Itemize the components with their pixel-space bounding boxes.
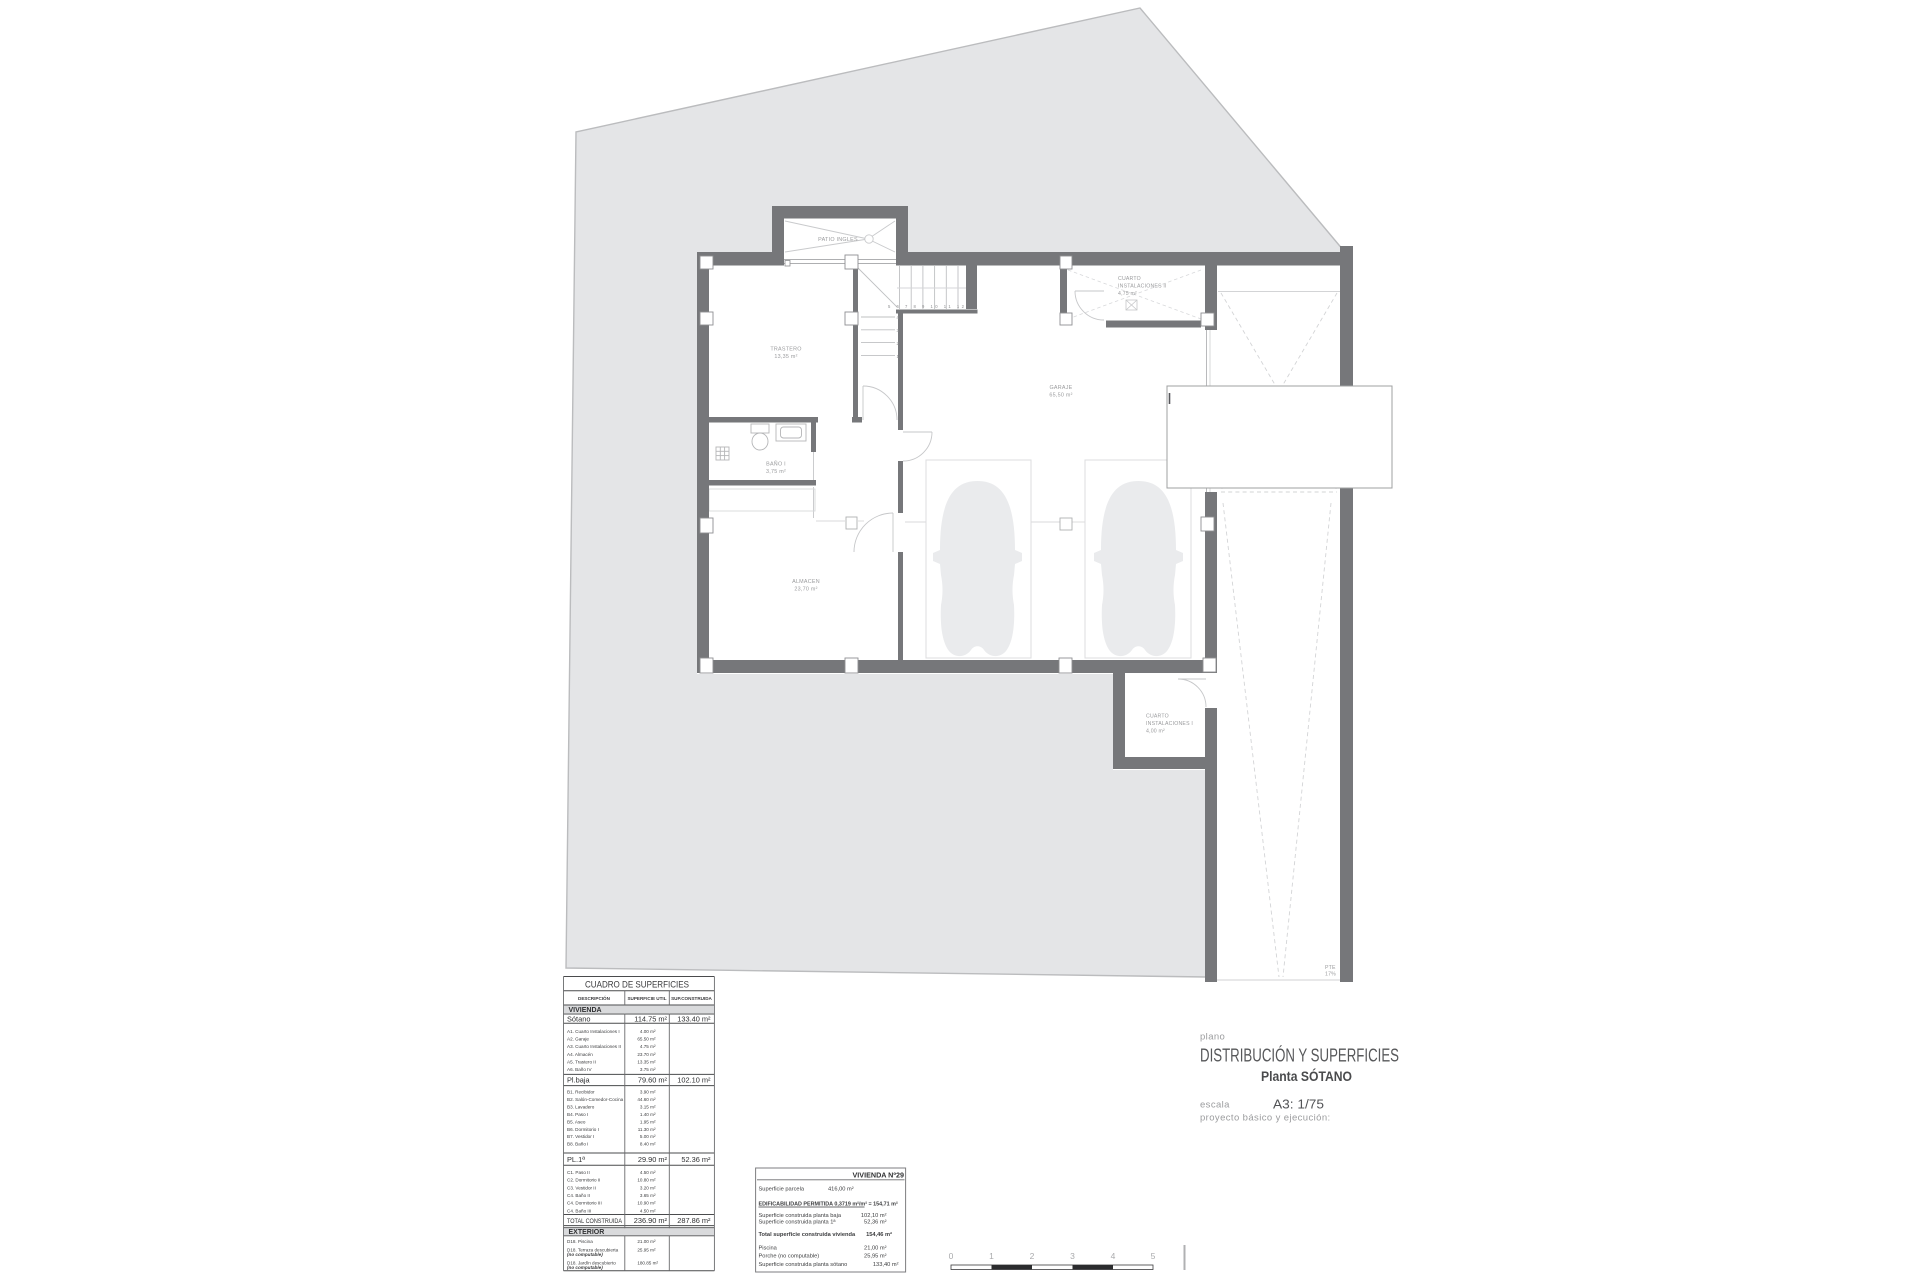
svg-text:Superficie construida planta s: Superficie construida planta sótano	[759, 1262, 848, 1268]
svg-text:23,70 m²: 23,70 m²	[794, 587, 817, 593]
svg-text:A1. Cuarto Instalaciones I: A1. Cuarto Instalaciones I	[567, 1029, 620, 1034]
svg-text:SUP.CONSTRUIDA: SUP.CONSTRUIDA	[671, 996, 712, 1001]
svg-text:10.80 m²: 10.80 m²	[637, 1178, 656, 1183]
svg-text:3.20 m²: 3.20 m²	[640, 1185, 656, 1190]
svg-text:65.50 m²: 65.50 m²	[637, 1037, 656, 1042]
svg-text:A6. Baño IV: A6. Baño IV	[567, 1067, 592, 1072]
svg-text:A4. Almacén: A4. Almacén	[567, 1052, 593, 1057]
svg-text:3.75 m²: 3.75 m²	[640, 1067, 656, 1072]
svg-text:B7. Vestidor I: B7. Vestidor I	[567, 1134, 594, 1139]
svg-text:79.60 m²: 79.60 m²	[638, 1076, 668, 1085]
svg-text:A2. Garaje: A2. Garaje	[567, 1037, 589, 1042]
svg-text:0: 0	[949, 1251, 954, 1261]
svg-text:2: 2	[1030, 1251, 1035, 1261]
svg-text:44.60 m²: 44.60 m²	[637, 1097, 656, 1102]
svg-text:CUADRO DE SUPERFICIES: CUADRO DE SUPERFICIES	[585, 980, 689, 991]
svg-text:proyecto básico y ejecución:: proyecto básico y ejecución:	[1200, 1113, 1331, 1124]
svg-text:13.35 m²: 13.35 m²	[637, 1059, 656, 1064]
svg-text:DISTRIBUCIÓN Y SUPERFICIES: DISTRIBUCIÓN Y SUPERFICIES	[1200, 1045, 1399, 1066]
svg-text:C4. Baño III: C4. Baño III	[567, 1208, 591, 1213]
svg-text:65,50 m²: 65,50 m²	[1049, 393, 1072, 399]
svg-text:21.00 m²: 21.00 m²	[637, 1239, 656, 1244]
svg-text:25.95 m²: 25.95 m²	[637, 1248, 656, 1253]
svg-text:Total superficie construida vi: Total superficie construida vivienda	[759, 1232, 856, 1238]
svg-text:(no computable): (no computable)	[567, 1265, 603, 1270]
svg-text:GARAJE: GARAJE	[1049, 385, 1072, 391]
svg-text:(no computable): (no computable)	[567, 1252, 603, 1257]
svg-text:B3. Lavadero: B3. Lavadero	[567, 1104, 595, 1109]
svg-text:CUARTO: CUARTO	[1146, 714, 1169, 720]
svg-text:Sótano: Sótano	[567, 1014, 590, 1023]
svg-text:3.15 m²: 3.15 m²	[640, 1104, 656, 1109]
svg-text:TRASTERO: TRASTERO	[770, 347, 801, 353]
svg-text:A3. Cuarto Instalaciones II: A3. Cuarto Instalaciones II	[567, 1044, 621, 1049]
svg-text:5: 5	[1151, 1251, 1156, 1261]
svg-text:A5. Trastero II: A5. Trastero II	[567, 1059, 596, 1064]
svg-text:4: 4	[1111, 1251, 1116, 1261]
svg-text:BAÑO I: BAÑO I	[766, 461, 786, 468]
svg-text:C4. Dormitorio III: C4. Dormitorio III	[567, 1201, 602, 1206]
svg-text:133.40 m²: 133.40 m²	[677, 1014, 711, 1023]
svg-text:4,75 m²: 4,75 m²	[1118, 291, 1137, 297]
svg-text:1.95 m²: 1.95 m²	[640, 1119, 656, 1124]
svg-text:236.90 m²: 236.90 m²	[634, 1216, 668, 1225]
svg-text:B1. Recibidor: B1. Recibidor	[567, 1090, 595, 1095]
svg-text:4.75 m²: 4.75 m²	[640, 1044, 656, 1049]
svg-text:Superficie parcela: Superficie parcela	[759, 1187, 805, 1193]
svg-text:11.30 m²: 11.30 m²	[638, 1127, 656, 1132]
svg-text:114.75 m²: 114.75 m²	[634, 1014, 667, 1023]
svg-text:Porche (no computable): Porche (no computable)	[759, 1254, 820, 1260]
svg-text:PL.1ª: PL.1ª	[567, 1155, 585, 1164]
svg-text:52,36 m²: 52,36 m²	[864, 1220, 887, 1226]
svg-text:180.85 m²: 180.85 m²	[637, 1261, 658, 1266]
svg-text:3,75 m²: 3,75 m²	[766, 469, 786, 475]
svg-text:5.00 m²: 5.00 m²	[640, 1134, 656, 1139]
svg-text:17%: 17%	[1325, 972, 1336, 978]
svg-text:287.86 m²: 287.86 m²	[677, 1216, 711, 1225]
svg-text:416,00 m²: 416,00 m²	[828, 1187, 854, 1193]
svg-text:C1. Paso II: C1. Paso II	[567, 1170, 590, 1175]
svg-text:D18. Piscina: D18. Piscina	[567, 1239, 593, 1244]
svg-text:PATIO INGLES: PATIO INGLES	[818, 237, 858, 243]
svg-text:C4. Baño II: C4. Baño II	[567, 1193, 590, 1198]
svg-text:23.70 m²: 23.70 m²	[637, 1052, 656, 1057]
svg-text:102,10 m²: 102,10 m²	[861, 1213, 887, 1219]
svg-text:escala: escala	[1200, 1100, 1230, 1111]
svg-text:C2. Dormitorio II: C2. Dormitorio II	[567, 1178, 600, 1183]
svg-text:21,00 m²: 21,00 m²	[864, 1246, 887, 1252]
svg-text:Piscina: Piscina	[759, 1246, 778, 1252]
svg-text:1.40 m²: 1.40 m²	[640, 1112, 656, 1117]
svg-text:B2. Salón-Comedor-Cocina: B2. Salón-Comedor-Cocina	[567, 1097, 624, 1102]
svg-text:3.65 m²: 3.65 m²	[640, 1193, 656, 1198]
svg-text:SUPERFICIE UTIL: SUPERFICIE UTIL	[627, 996, 666, 1001]
svg-text:DESCRIPCIÓN: DESCRIPCIÓN	[578, 994, 611, 1001]
svg-text:INSTALACIONES II: INSTALACIONES II	[1118, 284, 1167, 290]
svg-text:25,95 m²: 25,95 m²	[864, 1254, 887, 1260]
svg-text:154,46 m²: 154,46 m²	[866, 1231, 892, 1238]
svg-text:A3: 1/75: A3: 1/75	[1273, 1098, 1324, 1112]
svg-text:B8. Baño I: B8. Baño I	[567, 1142, 588, 1147]
svg-text:1: 1	[989, 1251, 994, 1261]
svg-text:TOTAL CONSTRUIDA: TOTAL CONSTRUIDA	[567, 1218, 622, 1225]
svg-text:EDIFICABILIDAD PERMITIDA 0,37: EDIFICABILIDAD PERMITIDA 0,3719 m²/m² = …	[759, 1201, 898, 1207]
svg-text:29.90 m²: 29.90 m²	[638, 1155, 668, 1164]
svg-text:Planta SÓTANO: Planta SÓTANO	[1261, 1069, 1352, 1084]
svg-text:3: 3	[1070, 1251, 1075, 1261]
svg-text:Superficie construida planta b: Superficie construida planta baja	[759, 1213, 842, 1219]
svg-text:133,40 m²: 133,40 m²	[873, 1262, 899, 1268]
svg-text:4,00 m²: 4,00 m²	[1146, 729, 1165, 735]
svg-text:EXTERIOR: EXTERIOR	[569, 1229, 605, 1236]
svg-text:4.50 m²: 4.50 m²	[640, 1208, 656, 1213]
svg-text:VIVIENDA Nº29: VIVIENDA Nº29	[853, 1171, 905, 1180]
svg-text:VIVIENDA: VIVIENDA	[569, 1007, 602, 1014]
svg-text:B5. Aseo: B5. Aseo	[567, 1119, 586, 1124]
svg-text:4.00 m²: 4.00 m²	[640, 1029, 656, 1034]
svg-text:10.90 m²: 10.90 m²	[637, 1201, 656, 1206]
svg-text:4.50 m²: 4.50 m²	[640, 1170, 656, 1175]
svg-text:plano: plano	[1200, 1032, 1225, 1043]
svg-text:Superficie construida planta 1: Superficie construida planta 1ª	[759, 1219, 837, 1226]
svg-text:3.90 m²: 3.90 m²	[640, 1090, 656, 1095]
svg-text:PTE: PTE	[1325, 965, 1336, 971]
svg-text:INSTALACIONES I: INSTALACIONES I	[1146, 721, 1193, 727]
svg-text:B4. Paso I: B4. Paso I	[567, 1112, 588, 1117]
svg-text:ALMACEN: ALMACEN	[792, 579, 820, 585]
svg-text:B6. Dormitorio I: B6. Dormitorio I	[567, 1127, 599, 1132]
svg-text:13,35 m²: 13,35 m²	[774, 354, 797, 360]
svg-text:CUARTO: CUARTO	[1118, 276, 1141, 282]
svg-text:52.36 m²: 52.36 m²	[681, 1155, 711, 1164]
svg-text:C3. Vestidor II: C3. Vestidor II	[567, 1185, 596, 1190]
svg-text:Pl.baja: Pl.baja	[567, 1076, 590, 1085]
svg-text:8.40 m²: 8.40 m²	[640, 1142, 656, 1147]
svg-text:102.10 m²: 102.10 m²	[677, 1076, 711, 1085]
